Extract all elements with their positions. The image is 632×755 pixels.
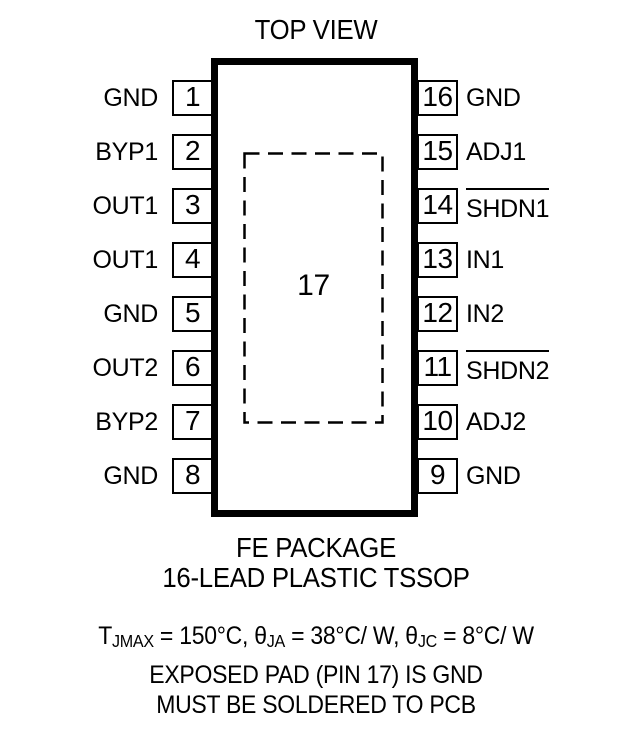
pin-name: GND (466, 458, 521, 494)
pin-box: 10 (417, 404, 458, 440)
pin-name: IN1 (466, 242, 504, 278)
pin-number: 12 (422, 297, 452, 328)
tjmax-value: = 150°C, (154, 622, 254, 650)
package-type: 16-LEAD PLASTIC TSSOP (25, 562, 606, 594)
tjmax-symbol: T (98, 622, 112, 650)
theta-jc-symbol: θ (405, 622, 418, 650)
pin-name: GND (466, 80, 521, 116)
thermal-note: TJMAX = 150°C, θJA = 38°C/ W, θJC = 8°C/… (25, 618, 606, 654)
solder-note: MUST BE SOLDERED TO PCB (25, 690, 606, 720)
pin-row: 14 SHDN1 (0, 188, 632, 224)
pin-number: 16 (422, 81, 452, 112)
pin-name: ADJ1 (466, 134, 526, 170)
pin-name: ADJ2 (466, 404, 526, 440)
pin-row: 15 ADJ1 (0, 134, 632, 170)
pin-row: 16 GND (0, 80, 632, 116)
exposed-pad-note: EXPOSED PAD (PIN 17) IS GND (25, 660, 606, 690)
pin-box: 12 (417, 296, 458, 332)
pin-box: 9 (417, 458, 458, 494)
pin-box: 11 (417, 350, 458, 386)
pin-number: 15 (422, 135, 452, 166)
pin-row: 10 ADJ2 (0, 404, 632, 440)
pin-number: 9 (430, 459, 445, 490)
pin-row: 13 IN1 (0, 242, 632, 278)
theta-jc-subscript: JC (418, 631, 437, 651)
pin-name: SHDN1 (466, 188, 549, 227)
package-name: FE PACKAGE (25, 532, 606, 564)
theta-ja-subscript: JA (267, 631, 285, 651)
pin-box: 16 (417, 80, 458, 116)
top-view-label: TOP VIEW (25, 14, 606, 46)
pin-number: 14 (422, 189, 452, 220)
pin-row: 9 GND (0, 458, 632, 494)
pin-box: 13 (417, 242, 458, 278)
pin-box: 14 (417, 188, 458, 224)
pin-name: SHDN2 (466, 350, 549, 389)
pin-row: 11 SHDN2 (0, 350, 632, 386)
pin-number: 10 (422, 405, 452, 436)
theta-ja-value: = 38°C/ W, (285, 622, 405, 650)
theta-ja-symbol: θ (254, 622, 267, 650)
pinout-diagram: TOP VIEW 17 1 GND 2 BYP1 3 OUT1 4 OUT1 5… (0, 0, 632, 755)
pin-number: 11 (423, 351, 451, 382)
pin-box: 15 (417, 134, 458, 170)
pin-name: IN2 (466, 296, 504, 332)
tjmax-subscript: JMAX (112, 631, 154, 651)
theta-jc-value: = 8°C/ W (437, 622, 534, 650)
pin-row: 12 IN2 (0, 296, 632, 332)
pin-number: 13 (422, 243, 452, 274)
